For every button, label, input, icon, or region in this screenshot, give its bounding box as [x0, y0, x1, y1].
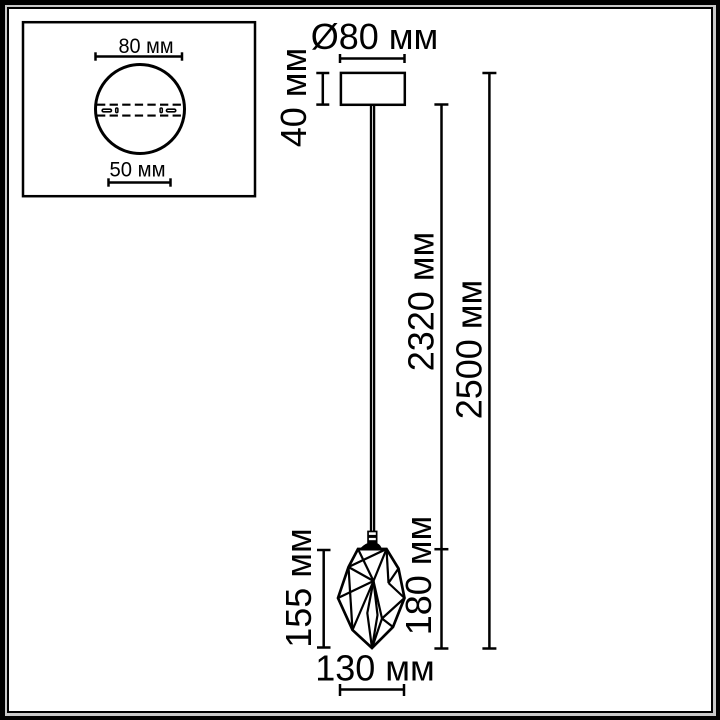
svg-text:2500 мм: 2500 мм	[449, 280, 490, 420]
svg-text:50 мм: 50 мм	[110, 159, 166, 182]
svg-text:40 мм: 40 мм	[273, 48, 314, 148]
svg-text:80 мм: 80 мм	[119, 35, 174, 58]
svg-text:180 мм: 180 мм	[398, 516, 439, 636]
svg-text:2320 мм: 2320 мм	[401, 232, 442, 372]
svg-text:130 мм: 130 мм	[315, 648, 435, 689]
svg-text:155 мм: 155 мм	[278, 528, 319, 648]
svg-text:Ø80 мм: Ø80 мм	[311, 16, 439, 57]
